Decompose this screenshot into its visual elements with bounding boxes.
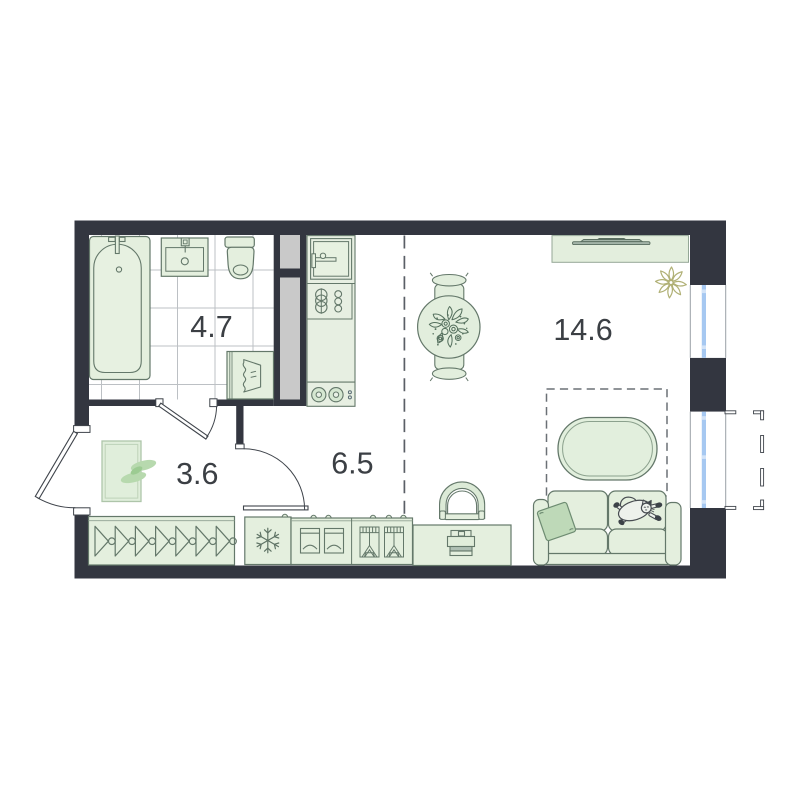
svg-text:6.5: 6.5 <box>331 447 373 481</box>
svg-text:14.6: 14.6 <box>553 313 612 347</box>
svg-text:4.7: 4.7 <box>190 310 232 344</box>
svg-text:3.6: 3.6 <box>176 457 218 491</box>
